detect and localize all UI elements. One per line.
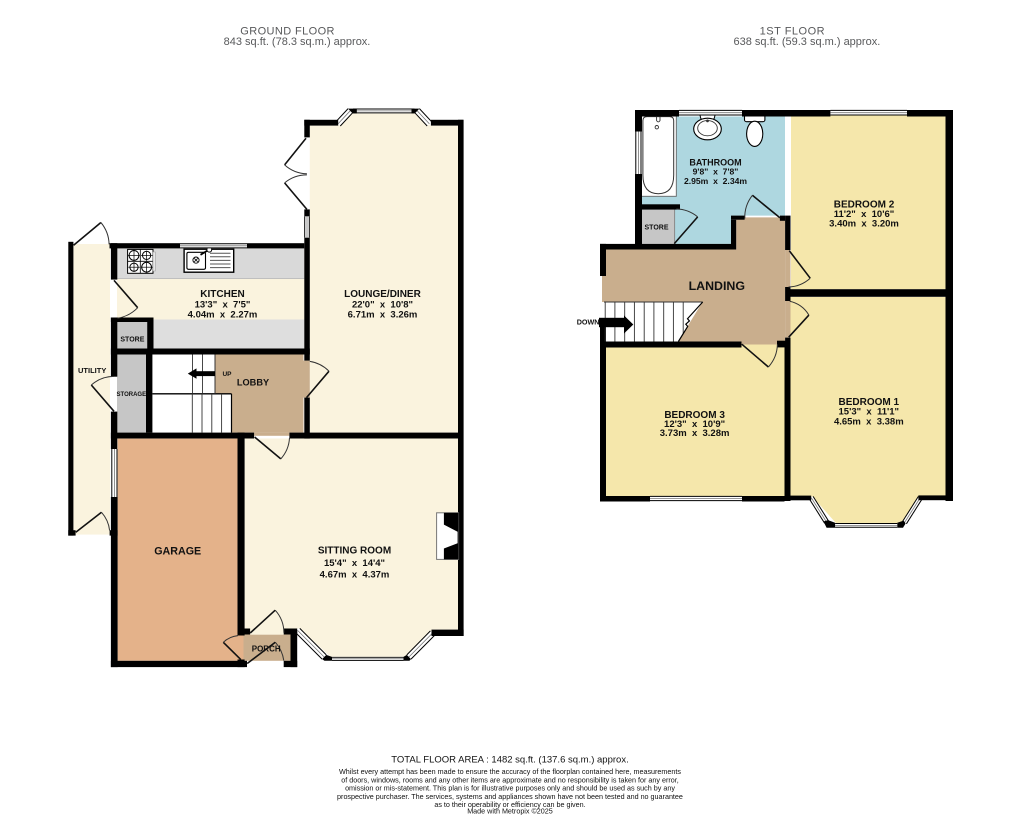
svg-text:TOTAL FLOOR AREA : 1482 sq.ft.: TOTAL FLOOR AREA : 1482 sq.ft. (137.6 sq… (391, 754, 628, 765)
svg-text:KITCHEN: KITCHEN (200, 289, 244, 300)
svg-text:638 sq.ft. (59.3 sq.m.) approx: 638 sq.ft. (59.3 sq.m.) approx. (734, 36, 881, 48)
svg-text:UTILITY: UTILITY (78, 366, 106, 375)
svg-text:UP: UP (222, 371, 232, 378)
svg-text:9'8" x 7'8": 9'8" x 7'8" (693, 167, 739, 177)
svg-text:3.73m x 3.28m: 3.73m x 3.28m (660, 428, 730, 439)
svg-text:GARAGE: GARAGE (154, 546, 201, 558)
svg-text:LANDING: LANDING (689, 279, 745, 293)
svg-text:4.04m x 2.27m: 4.04m x 2.27m (188, 309, 258, 320)
svg-text:6.71m x 3.26m: 6.71m x 3.26m (348, 309, 418, 320)
svg-text:3.40m x 3.20m: 3.40m x 3.20m (829, 218, 899, 229)
svg-text:LOUNGE/DINER: LOUNGE/DINER (344, 289, 421, 300)
svg-text:Made with Metropix ©2025: Made with Metropix ©2025 (467, 806, 553, 815)
svg-text:15'4" x 14'4": 15'4" x 14'4" (324, 558, 385, 569)
svg-text:843 sq.ft. (78.3 sq.m.) approx: 843 sq.ft. (78.3 sq.m.) approx. (224, 36, 371, 48)
svg-text:STORE: STORE (645, 224, 669, 231)
svg-text:LOBBY: LOBBY (237, 377, 269, 387)
svg-text:2.95m x 2.34m: 2.95m x 2.34m (684, 176, 747, 186)
svg-text:4.67m x 4.37m: 4.67m x 4.37m (320, 570, 390, 581)
svg-text:STORE: STORE (120, 336, 144, 343)
svg-text:4.65m x 3.38m: 4.65m x 3.38m (834, 417, 904, 428)
svg-text:STORAGE: STORAGE (117, 392, 147, 398)
svg-text:DOWN: DOWN (577, 317, 600, 326)
svg-text:PORCH: PORCH (252, 645, 281, 654)
svg-text:SITTING ROOM: SITTING ROOM (318, 545, 391, 556)
